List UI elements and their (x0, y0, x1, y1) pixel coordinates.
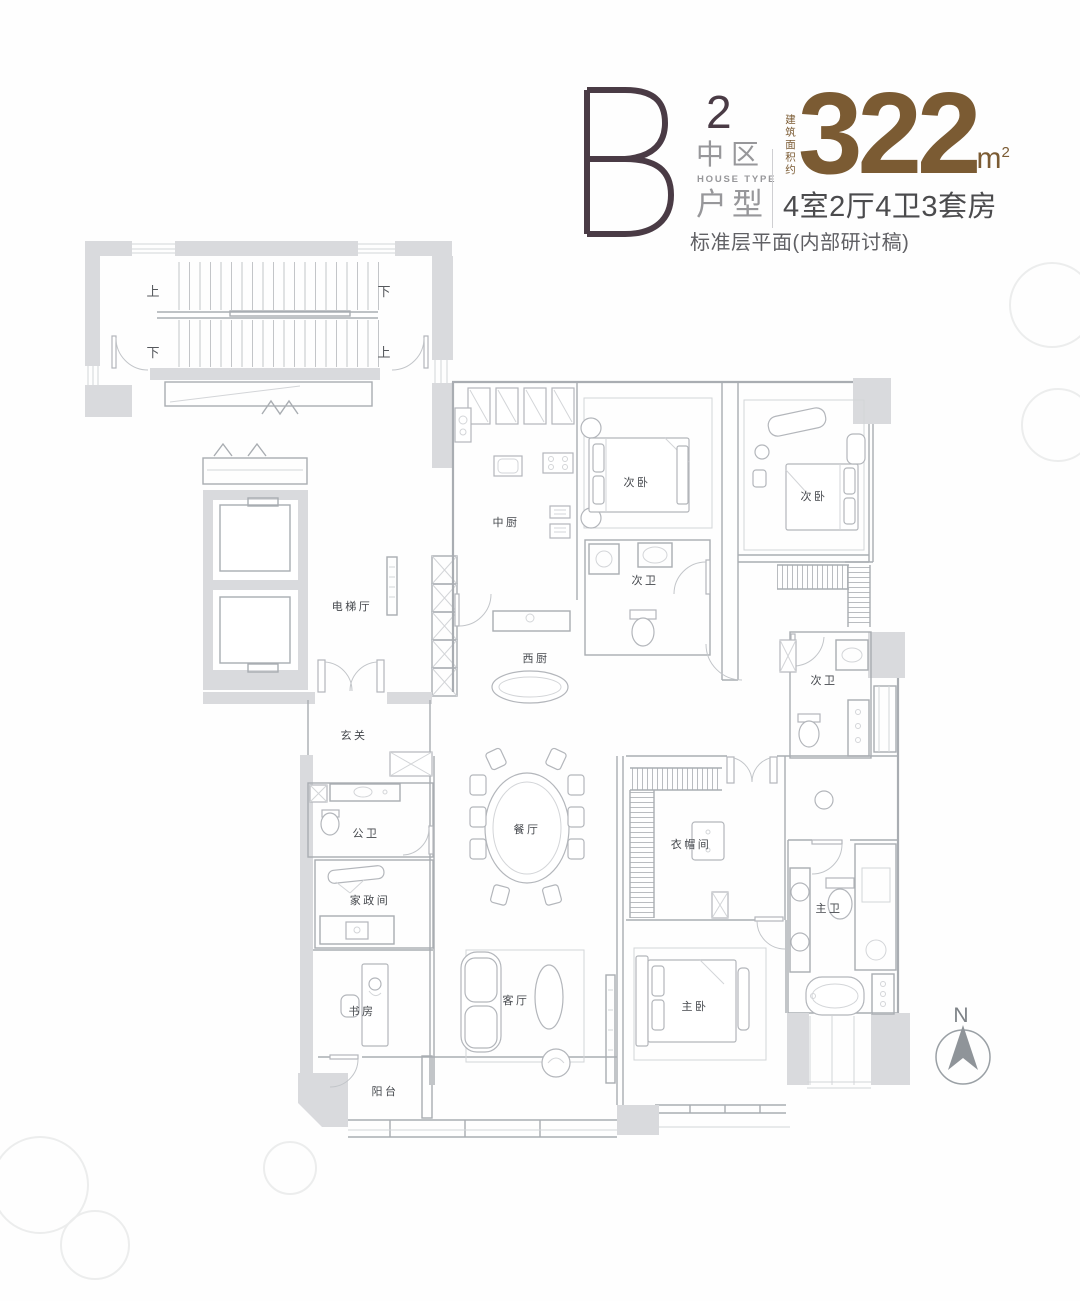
bedroom-2-right-furniture (744, 400, 865, 550)
compass (936, 1025, 990, 1084)
elevator-area (203, 444, 457, 704)
master-bath-fixtures (790, 844, 896, 1015)
room-label-bedroom-2-mid: 次卧 (624, 475, 651, 489)
room-label-study: 书房 (349, 1005, 376, 1018)
room-label-cloakroom: 衣帽间 (671, 837, 712, 851)
study-furniture (341, 964, 388, 1046)
room-label-living-room: 客厅 (503, 993, 530, 1007)
living-room-furniture (461, 950, 615, 1083)
room-label-balcony: 阳台 (372, 1084, 399, 1098)
room-label-guest-bath: 公卫 (353, 828, 380, 840)
staircase-core (85, 241, 453, 468)
door-swings (330, 560, 842, 1087)
kitchen-chinese-fixtures (455, 388, 574, 538)
floorplan-page: 2 中区 HOUSE TYPE 户型 建筑面积约 322 m2 4室2厅4卫3套… (0, 0, 1080, 1301)
room-label-elevator-hall: 电梯厅 (332, 600, 373, 613)
room-label-kitchen-western: 西厨 (523, 652, 550, 665)
bedroom-2-mid-furniture (581, 398, 712, 528)
stair-label-stair-down-left: 下 (146, 345, 159, 360)
stair-label-stair-up-right: 上 (377, 345, 390, 360)
room-label-master-bedroom: 主卧 (682, 1000, 709, 1013)
bath-2-right-fixtures (780, 640, 869, 756)
room-label-foyer: 玄关 (341, 728, 368, 742)
stair-label-stair-up-left: 上 (146, 284, 159, 299)
room-label-bath-2-mid: 次卫 (632, 573, 659, 587)
room-label-kitchen-chinese: 中厨 (493, 516, 520, 529)
room-label-dining-room: 餐厅 (514, 822, 541, 836)
compass-north: N (953, 1004, 968, 1027)
floorplan-svg: 电梯厅中厨西厨次卧次卫次卧次卫玄关公卫餐厅家政间衣帽间主卫书房客厅主卧阳台上下下… (0, 0, 1080, 1301)
room-label-bath-2-right: 次卫 (811, 673, 838, 687)
bath-2-mid-fixtures (589, 543, 672, 646)
foyer-fixtures (390, 752, 432, 776)
room-label-housekeeping: 家政间 (350, 893, 391, 907)
stair-label-stair-down-right: 下 (377, 284, 390, 299)
room-label-master-bath: 主卫 (816, 902, 843, 915)
room-label-bedroom-2-right: 次卧 (801, 489, 828, 503)
